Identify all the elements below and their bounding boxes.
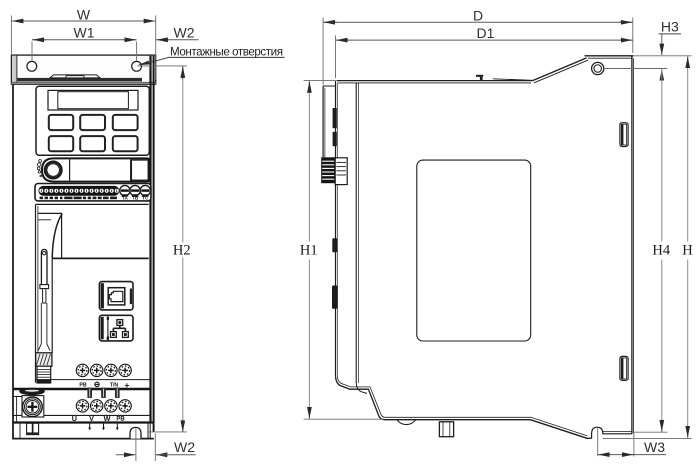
svg-text:D: D — [473, 8, 483, 24]
svg-text:PB: PB — [79, 382, 86, 388]
svg-text:W2: W2 — [174, 439, 195, 455]
svg-text:D1: D1 — [477, 25, 495, 41]
svg-text:H4: H4 — [652, 243, 670, 259]
svg-text:TA: TA — [122, 196, 128, 201]
svg-text:W: W — [77, 6, 91, 22]
svg-text:H2: H2 — [173, 243, 191, 259]
svg-text:TB: TB — [132, 196, 139, 201]
svg-text:W2: W2 — [174, 25, 195, 41]
svg-text:W3: W3 — [644, 439, 665, 455]
svg-text:T/N: T/N — [110, 382, 119, 388]
svg-text:H1: H1 — [300, 243, 318, 259]
svg-text:TC: TC — [142, 196, 149, 201]
svg-text:W1: W1 — [74, 25, 95, 41]
svg-text:H3: H3 — [661, 19, 679, 35]
svg-text:Монтажные отверстия: Монтажные отверстия — [170, 45, 283, 58]
svg-text:H: H — [682, 243, 693, 259]
